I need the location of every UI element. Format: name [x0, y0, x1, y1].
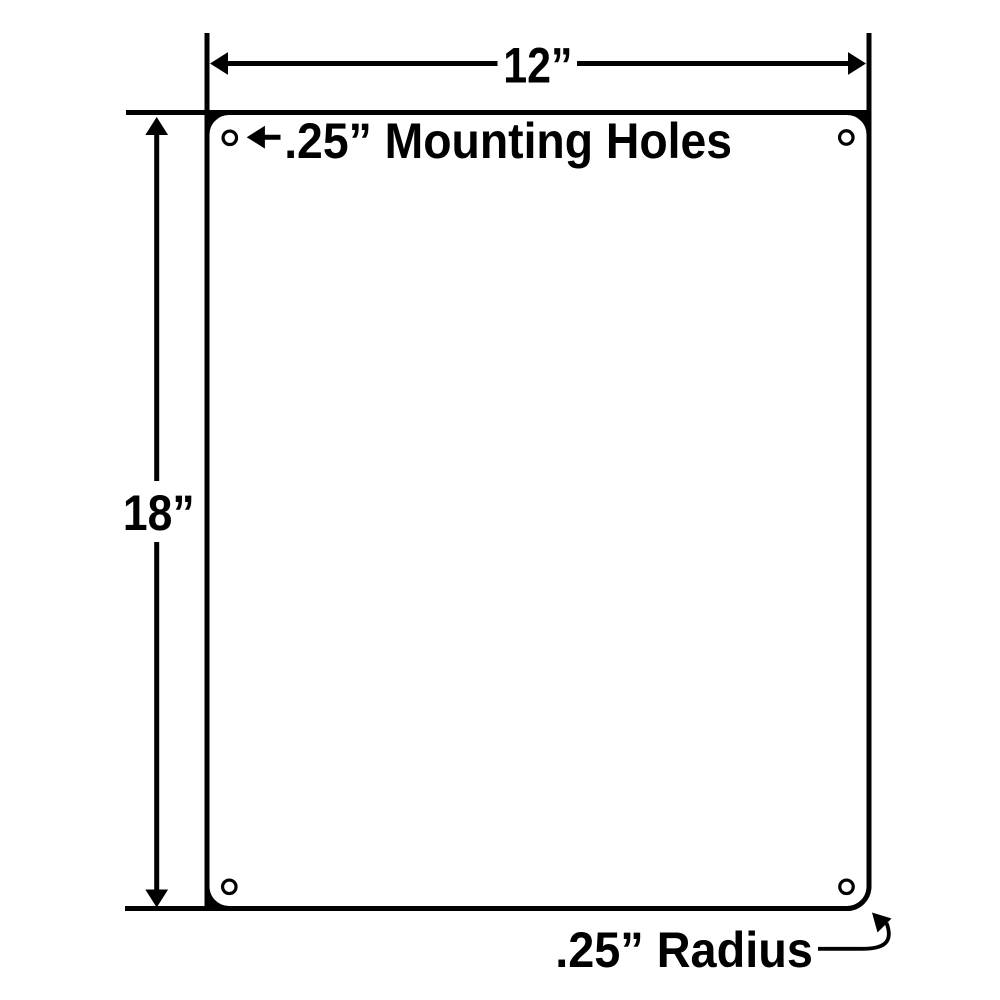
svg-text:.25” Mounting Holes: .25” Mounting Holes — [284, 113, 732, 169]
svg-text:12”: 12” — [503, 37, 572, 93]
svg-text:18”: 18” — [123, 485, 195, 541]
svg-text:.25” Radius: .25” Radius — [555, 922, 813, 978]
